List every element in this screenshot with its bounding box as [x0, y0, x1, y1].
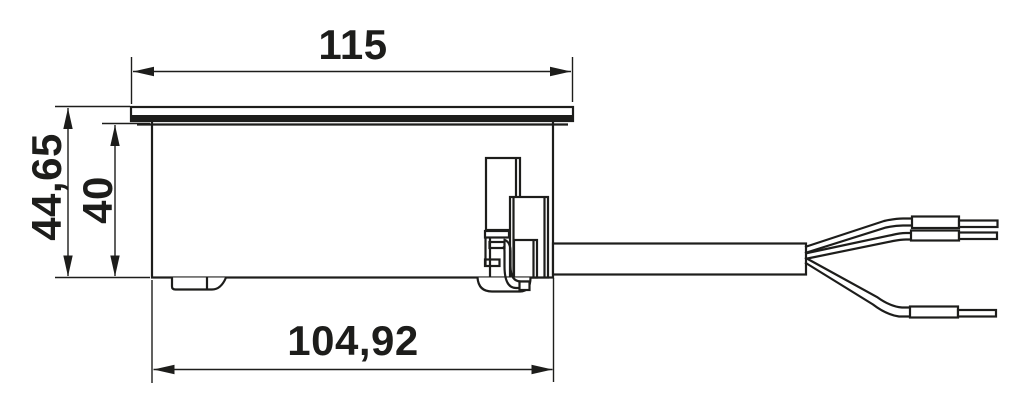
lid-plate-band — [131, 115, 573, 121]
power-cable — [553, 244, 806, 275]
dimension-housing-height: 40 — [74, 124, 150, 277]
dimension-drawing: 115 44,65 40 104,92 — [0, 0, 1024, 408]
arrowhead-up-icon — [110, 125, 119, 146]
wire-bottom — [805, 258, 996, 318]
arrowhead-right-icon — [550, 67, 571, 76]
latch-hook-end — [520, 282, 530, 291]
product-outline — [131, 107, 998, 318]
latch-bracket-bar-mid — [490, 242, 505, 248]
dimension-bottom-width: 104,92 — [152, 278, 554, 383]
dim-label-top-width: 115 — [318, 21, 387, 68]
wire-ferrule — [911, 231, 959, 241]
dim-label-bottom-width: 104,92 — [287, 317, 418, 364]
latch-bracket-bar-top — [485, 231, 509, 238]
arrowhead-up-icon — [63, 108, 72, 129]
arrowhead-left-icon — [133, 67, 154, 76]
dimension-top-width: 115 — [132, 21, 573, 104]
dim-label-overall-height: 44,65 — [23, 133, 70, 241]
wire-ferrule — [912, 217, 959, 229]
cover-lid — [131, 107, 573, 125]
wire-tip — [959, 233, 997, 240]
mounting-foot-left — [172, 278, 226, 290]
arrowhead-left-icon — [154, 365, 175, 374]
wire-ferrule — [910, 307, 958, 318]
arrowhead-down-icon — [63, 256, 72, 277]
wire-tip — [958, 310, 996, 317]
dim-label-housing-height: 40 — [74, 176, 121, 224]
wire-tip — [959, 221, 998, 228]
technical-drawing-canvas: 115 44,65 40 104,92 — [0, 0, 1024, 408]
arrowhead-down-icon — [110, 256, 119, 277]
latch-bracket-bar-low — [485, 260, 500, 267]
arrowhead-right-icon — [532, 365, 553, 374]
